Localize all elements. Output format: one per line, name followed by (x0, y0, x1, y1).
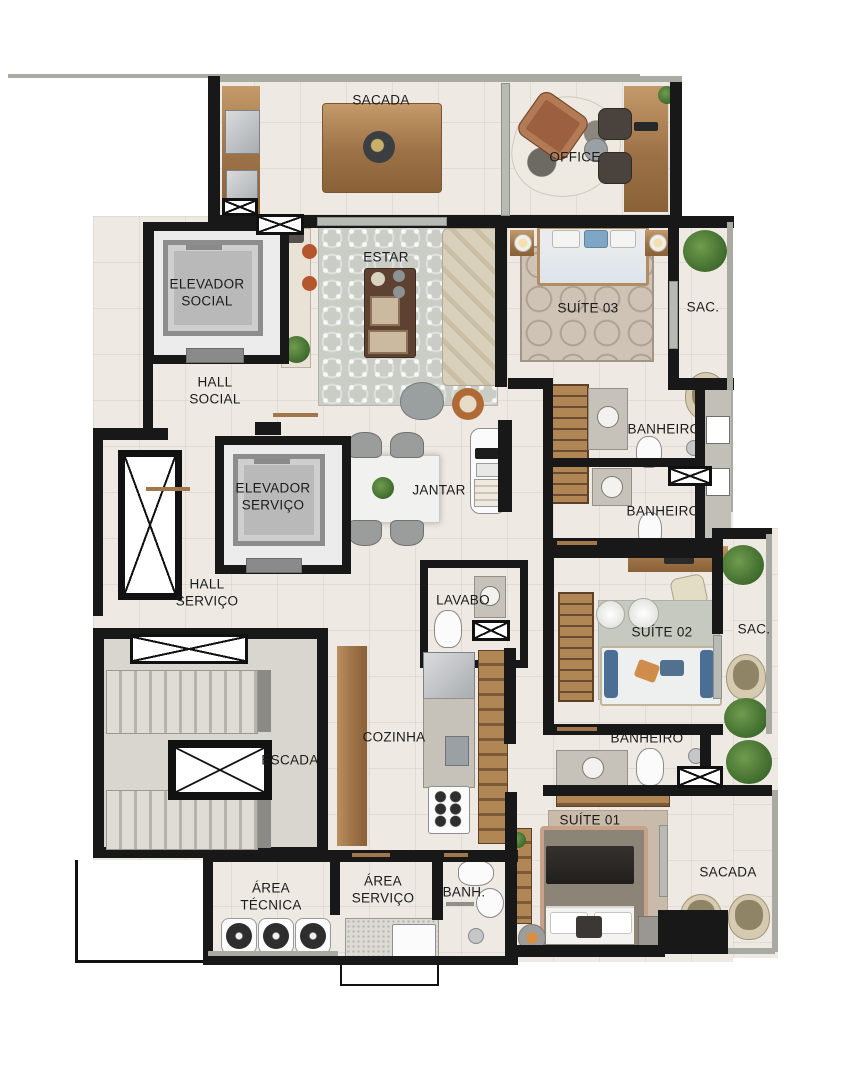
laundry-sink (392, 924, 436, 960)
label-escada: ESCADA (261, 751, 318, 768)
label-estar: ESTAR (363, 248, 409, 265)
label-sac-mid: SAC. (738, 620, 771, 637)
cooktop-small (476, 463, 500, 477)
label-area-servico: ÁREA SERVIÇO (352, 873, 415, 908)
desk-monitor (634, 122, 658, 131)
elevador-social-handle (186, 245, 222, 250)
sac-mid-plant-top (722, 545, 764, 585)
ac-condenser-3 (295, 918, 331, 954)
dishwasher (445, 736, 469, 766)
suite03-pillow-2 (584, 230, 608, 248)
dining-chair-4 (390, 520, 424, 546)
label-sacada-suite01: SACADA (699, 863, 756, 880)
wall-estar-hall-stub (255, 422, 281, 435)
stairs-upper-flight (106, 670, 258, 734)
wall-hall-social-left (143, 222, 153, 437)
suite02-closet (558, 592, 594, 702)
table-tray (363, 131, 395, 163)
label-suite01: SUÍTE 01 (560, 811, 621, 828)
label-cozinha: COZINHA (363, 728, 426, 745)
wall-sac-top-top (668, 216, 734, 228)
divider-office (502, 84, 509, 215)
bath3-toilet (636, 748, 664, 786)
vent-sacada (222, 198, 258, 216)
stairs-void (168, 740, 272, 800)
wall-bottom-rooms-bottom (203, 956, 518, 965)
wall-left-mid (93, 428, 103, 616)
plants-column-1 (726, 740, 772, 784)
bath2-basin (601, 476, 623, 498)
sliding-door-sac-top (670, 282, 677, 348)
sacada-bottom-railing-right (772, 790, 778, 952)
wall-suite01-left (505, 792, 517, 952)
wall-estar-suite03 (495, 215, 507, 387)
label-hall-social: HALL SOCIAL (189, 374, 240, 409)
stairs-handrail-top (258, 670, 271, 732)
side-table-round (452, 388, 484, 420)
console-stool-2 (302, 276, 317, 291)
office-desk (624, 86, 668, 212)
label-suite03: SUÍTE 03 (558, 299, 619, 316)
suite01-throw (546, 846, 634, 884)
coffee-decor-1 (371, 272, 385, 286)
label-banheiro-suite01: BANHEIRO (611, 729, 684, 746)
area-tecnica-grille (208, 951, 338, 956)
console-stool-1 (302, 244, 317, 259)
label-office: OFFICE (549, 148, 600, 165)
kitchen-counter-left (337, 646, 369, 846)
void-room (75, 860, 206, 963)
vent-bath3 (677, 766, 723, 788)
coffee-decor-3 (393, 286, 405, 298)
wall-tecnica-servico-divider (330, 860, 340, 915)
suite03-pillow-3 (610, 230, 636, 248)
label-banheiro-suite03: BANHEIRO (628, 420, 701, 437)
sliding-door-sac-mid (714, 636, 721, 698)
wall-office-right (670, 82, 682, 218)
label-area-tecnica: ÁREA TÉCNICA (240, 880, 301, 915)
wall-suite02-right (712, 538, 723, 634)
ac-condenser-1 (221, 918, 257, 954)
label-banh: BANH. (443, 883, 486, 900)
bath-window-1 (706, 416, 730, 444)
door-hall-servico (146, 487, 190, 491)
coffee-tray-1 (370, 296, 400, 326)
dining-chair-2 (390, 432, 424, 458)
label-sacada-top: SACADA (352, 91, 409, 108)
lavabo-toilet (434, 610, 462, 648)
door-suite02-bath (557, 727, 597, 731)
wall-servico-banh-divider (432, 858, 443, 920)
label-elevador-social: ELEVADOR SOCIAL (170, 276, 245, 311)
label-suite02: SUÍTE 02 (632, 623, 693, 640)
shaft-duct (118, 450, 182, 600)
ac-condenser-2 (258, 918, 294, 954)
floor-plan: SACADA OFFICE ELEVADOR SOCIAL ESTAR SUÍT… (0, 0, 866, 1080)
door-area-servico (352, 853, 390, 857)
suite03-closet (551, 384, 589, 504)
vent-escada-top (130, 634, 248, 664)
suite02-bolster-left (604, 650, 618, 698)
nightstand-lamp-left (514, 234, 532, 252)
banh-shower-drain (468, 928, 484, 944)
pouf (400, 382, 444, 420)
vent-bath2 (668, 466, 712, 486)
label-elevador-servico: ELEVADOR SERVIÇO (236, 480, 311, 515)
office-chair-2 (598, 152, 632, 184)
label-sac-top: SAC. (687, 298, 720, 315)
suite01-pillow-dark (576, 916, 602, 938)
coffee-decor-2 (393, 270, 405, 282)
sacada-bottom-chair-2 (728, 894, 770, 940)
grill (225, 110, 260, 154)
sacada-bottom-planter-wall (658, 910, 728, 954)
wall-sac-mid-top (712, 528, 772, 539)
bath1-basin (597, 406, 619, 428)
sacada-top-railing (208, 76, 682, 82)
stove-burners (433, 791, 463, 827)
sac-mid-plant-bottom (724, 698, 768, 738)
coffee-tray-2 (368, 330, 408, 354)
wall-suite02-left (543, 538, 554, 735)
sofa (442, 228, 502, 386)
wall-suite01-bottom (505, 945, 665, 957)
vent-lavabo (472, 620, 510, 641)
dining-plant (372, 477, 394, 499)
door-estar (273, 413, 318, 417)
suite02-pillow-blue (660, 660, 684, 676)
wall-bath-bottom (543, 548, 713, 558)
suite02-bolster-right (700, 650, 714, 698)
sliding-door-sacada-bottom (660, 826, 667, 896)
sliding-door-estar (318, 218, 446, 225)
banh-towel-bar (446, 902, 474, 906)
elevador-social-mat (186, 348, 244, 363)
office-chair-1 (598, 108, 632, 140)
label-banheiro-social: BANHEIRO (627, 502, 700, 519)
dining-chair-1 (348, 432, 382, 458)
label-lavabo: LAVABO (436, 591, 490, 608)
wall-appliance-right (498, 420, 512, 512)
wall-suite03-bottom (508, 378, 548, 389)
wall-sacada-left (208, 76, 220, 218)
elevador-servico-handle (254, 459, 290, 464)
wall-area-tecnica-left (203, 856, 213, 962)
door-suite02 (557, 541, 597, 545)
suite03-pillow-1 (552, 230, 580, 248)
door-banh (444, 853, 468, 857)
elevador-servico-mat (246, 558, 302, 573)
fridge (423, 652, 475, 700)
wall-hall-servico-step (93, 428, 168, 440)
label-jantar: JANTAR (412, 481, 465, 498)
wall-bath-left (543, 378, 553, 558)
vent-hall-social (256, 214, 304, 235)
dining-chair-3 (348, 520, 382, 546)
exterior-wall-strip (703, 390, 731, 538)
bath3-basin (582, 757, 604, 779)
nightstand-lamp-right (649, 234, 667, 252)
wall-cozinha-right (504, 648, 516, 744)
coffee-machine (475, 448, 499, 459)
banh-toilet (458, 860, 494, 886)
suite02-pouf-1 (596, 600, 625, 629)
sac-top-plant (683, 230, 727, 272)
label-hall-servico: HALL SERVIÇO (176, 576, 239, 611)
sac-mid-chair (726, 654, 766, 700)
